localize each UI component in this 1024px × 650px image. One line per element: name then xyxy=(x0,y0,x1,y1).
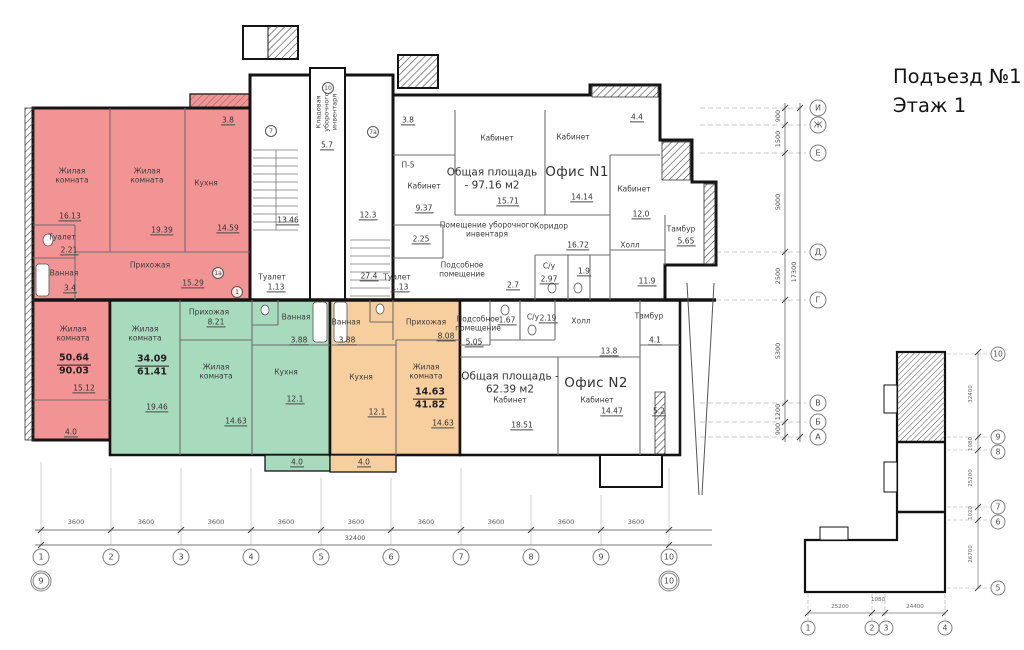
dim-label: 5000 xyxy=(774,194,782,211)
room-area: 19.39 xyxy=(150,226,173,235)
room-label-cabinet: Кабинет xyxy=(556,134,589,143)
living-total: 50.64 xyxy=(57,353,91,366)
keyplan-axis-bubble: 3 xyxy=(879,621,894,636)
room-area: 14.63 xyxy=(224,417,247,426)
dimension: 4.4 xyxy=(630,113,644,122)
room-area: 12.0 xyxy=(632,210,651,219)
balcony-area: 4.0 xyxy=(290,458,304,467)
stair-area: 13.46 xyxy=(276,216,299,225)
balcony-area: 3.8 xyxy=(221,116,235,125)
axis-bubble: Д xyxy=(810,244,827,261)
dim-label: 3600 xyxy=(138,518,155,526)
axis-bubble: 7 xyxy=(453,549,470,566)
room-area: 19.46 xyxy=(145,403,168,412)
room-area: 8.21 xyxy=(207,318,226,327)
room-area: 1.13 xyxy=(391,283,410,292)
apartment-total-areas: 50.64 90.03 xyxy=(57,353,91,378)
room-label-hallway: Прихожая xyxy=(189,309,229,318)
room-area: 9.37 xyxy=(415,204,434,213)
axis-bubble: Е xyxy=(810,145,827,162)
keyplan-axis-bubble: 10 xyxy=(991,347,1006,362)
axis-bubble: 2 xyxy=(103,549,120,566)
room-label-living: Жилая комната xyxy=(48,167,96,184)
room-area: 12.1 xyxy=(286,395,305,404)
axis-mark: 1а xyxy=(212,267,224,279)
room-area: 14.63 xyxy=(431,419,454,428)
room-label-bathroom: Ванная xyxy=(332,319,361,328)
room-label-cabinet: Кабинет xyxy=(580,397,613,406)
room-label-utility: Подсобное помещение xyxy=(432,261,492,278)
room-area: 3.88 xyxy=(338,336,357,345)
keyplan-dim: 1080 xyxy=(968,437,974,451)
axis-bubble: 9 xyxy=(593,549,610,566)
axis-bubble: А xyxy=(810,429,827,446)
axis-bubble: В xyxy=(810,395,827,412)
room-area: 14.47 xyxy=(600,407,623,416)
keyplan-dim: 32400 xyxy=(968,385,974,403)
axis-bubble: 4 xyxy=(243,549,260,566)
room-area: 15.71 xyxy=(496,197,519,206)
room-area: 2.21 xyxy=(60,246,79,255)
dim-label: 3600 xyxy=(418,518,435,526)
room-label-cabinet: Кабинет xyxy=(407,183,440,192)
room-area: 15.29 xyxy=(181,279,204,288)
dim-label: 900 xyxy=(774,110,782,122)
office-total-area: Общая площадь - 97.16 м2 xyxy=(445,166,540,191)
dim-label: 900 xyxy=(774,423,782,435)
room-label-kitchen: Кухня xyxy=(194,180,218,189)
room-label-wc: С/у xyxy=(543,263,555,272)
room-area: 5.2 xyxy=(652,407,666,416)
office-name: Офис N2 xyxy=(564,375,627,391)
axis-mark: 7 xyxy=(265,125,277,137)
dim-label: 3600 xyxy=(68,518,85,526)
room-label-living: Жилая комната xyxy=(121,325,169,342)
room-area: 4.1 xyxy=(648,336,662,345)
axis-bubble: И xyxy=(810,100,827,117)
dim-label: 5300 xyxy=(774,343,782,360)
living-total: 34.09 xyxy=(135,354,169,367)
room-area: 2.25 xyxy=(412,235,431,244)
axis-bubble: 10 xyxy=(661,549,678,566)
total-area: 90.03 xyxy=(57,366,91,378)
room-label-bathroom: Ванная xyxy=(282,314,311,323)
axis-mark: 1 xyxy=(231,286,243,298)
sheet-title: Подъезд №1 Этаж 1 xyxy=(893,62,1022,121)
room-label-living: Жилая комната xyxy=(192,363,240,380)
apartment-total-areas: 14.63 41.82 xyxy=(413,387,447,412)
room-label-hall: Холл xyxy=(620,242,639,251)
office-name: Офис N1 xyxy=(545,164,608,180)
room-area: 8.08 xyxy=(437,332,456,341)
room-label-living: Жилая комната xyxy=(402,363,450,380)
room-label-kitchen: Кухня xyxy=(349,374,373,383)
balcony-area: 3.8 xyxy=(401,116,415,125)
dim-label: 3600 xyxy=(348,518,365,526)
keyplan-dim: 25200 xyxy=(968,469,974,487)
room-area: 5.65 xyxy=(677,237,696,246)
keyplan-axis-bubble: 6 xyxy=(991,515,1006,530)
room-area: 16.72 xyxy=(566,241,589,250)
keyplan-axis-bubble: 4 xyxy=(938,621,953,636)
room-label-hallway: Прихожая xyxy=(130,262,170,271)
keyplan-axis-bubble: 9 xyxy=(991,430,1006,445)
room-area: 1.9 xyxy=(577,267,591,276)
room-area: 5.05 xyxy=(465,338,484,347)
room-label-living: Жилая комната xyxy=(123,167,171,184)
room-area: 12.1 xyxy=(368,408,387,417)
room-area: 18.51 xyxy=(510,421,533,430)
axis-bubble: 1 xyxy=(33,549,50,566)
balcony-area: 4.0 xyxy=(64,428,78,437)
balcony-area: 4.0 xyxy=(357,458,371,467)
keyplan-dim: 25200 xyxy=(831,604,849,610)
room-area: 2.7 xyxy=(506,281,520,290)
pier-mark: П-5 xyxy=(401,162,414,171)
dim-label: 3600 xyxy=(208,518,225,526)
axis-mark: 7а xyxy=(367,126,379,138)
room-area: 15.12 xyxy=(72,384,95,393)
room-area: 2.97 xyxy=(540,275,559,284)
keyplan-dim: 1080 xyxy=(871,597,885,603)
living-total: 14.63 xyxy=(413,387,447,400)
room-area: 16.13 xyxy=(58,212,81,221)
dim-label: 1200 xyxy=(774,404,782,421)
dim-total: 32400 xyxy=(345,534,366,542)
dim-label: 3600 xyxy=(278,518,295,526)
keyplan-axis-bubble: 5 xyxy=(991,581,1006,596)
keyplan-dim: 1020 xyxy=(968,506,974,520)
keyplan-axis-bubble: 1 xyxy=(801,621,816,636)
room-label-toilet: Туалет xyxy=(258,274,285,283)
room-label-cabinet: Кабинет xyxy=(493,397,526,406)
room-label-cleaning: Помещение уборочного инвентаря xyxy=(440,221,535,238)
total-area: 41.82 xyxy=(413,400,447,412)
room-area: 1.13 xyxy=(267,283,286,292)
dim-label: 2500 xyxy=(774,268,782,285)
room-area: 3.4 xyxy=(63,284,77,293)
axis-bubble: 5 xyxy=(313,549,330,566)
room-label-toilet: Туалет xyxy=(48,234,75,243)
room-label-cabinet: Кабинет xyxy=(480,135,513,144)
room-area: 5.7 xyxy=(320,141,334,150)
keyplan-axis-bubble: 8 xyxy=(991,445,1006,460)
room-area: 3.88 xyxy=(290,336,309,345)
axis-bubble: 10 xyxy=(661,573,678,590)
axis-bubble: Г xyxy=(810,292,827,309)
axis-mark: 10 xyxy=(322,82,334,94)
dimension: 27.4 xyxy=(360,272,379,281)
dim-label: 3600 xyxy=(558,518,575,526)
total-area: 61.41 xyxy=(135,367,169,379)
dim-label: 1500 xyxy=(774,131,782,148)
keyplan-dim: 24400 xyxy=(906,604,924,610)
room-label-tambour: Тамбур xyxy=(667,226,696,235)
stair-area: 12.3 xyxy=(359,211,378,220)
room-label-bathroom: Ванная xyxy=(50,270,79,279)
office-total-area: Общая площадь - 62.39 м2 xyxy=(460,370,560,395)
room-label-hallway: Прихожая xyxy=(406,319,446,328)
dim-total: 17300 xyxy=(790,262,798,283)
room-label-cabinet: Кабинет xyxy=(617,186,650,195)
axis-bubble: Ж xyxy=(810,117,827,134)
room-label-kitchen: Кухня xyxy=(274,369,298,378)
apartment-total-areas: 34.09 61.41 xyxy=(135,354,169,379)
room-area: 11.9 xyxy=(638,277,657,286)
room-label-corridor: Коридор xyxy=(534,223,568,232)
room-label-tambour: Тамбур xyxy=(635,313,664,322)
floor-title: Этаж 1 xyxy=(893,91,1022,120)
axis-bubble: 8 xyxy=(523,549,540,566)
room-label-wc: С/у xyxy=(527,314,539,323)
room-area: 14.14 xyxy=(570,193,593,202)
axis-bubble: 9 xyxy=(33,573,50,590)
room-area: 1.67 xyxy=(498,316,517,325)
entrance-title: Подъезд №1 xyxy=(893,62,1022,91)
room-area: 14.59 xyxy=(216,224,239,233)
room-area: 2.19 xyxy=(539,314,558,323)
room-label-hall: Холл xyxy=(571,318,590,327)
axis-bubble: 3 xyxy=(173,549,190,566)
floor-plan-sheet: Подъезд №1 Этаж 1 Жилая комната 16.13 Жи… xyxy=(0,0,1024,650)
room-label-living: Жилая комната xyxy=(49,325,97,342)
keyplan-axis-bubble: 7 xyxy=(991,500,1006,515)
room-area: 13.8 xyxy=(600,347,619,356)
dim-label: 3600 xyxy=(488,518,505,526)
keyplan-axis-bubble: 2 xyxy=(865,621,880,636)
keyplan-dim: 26700 xyxy=(968,545,974,563)
room-label-toilet: Туалет xyxy=(383,274,410,283)
dim-label: 3600 xyxy=(628,518,645,526)
axis-bubble: 6 xyxy=(383,549,400,566)
